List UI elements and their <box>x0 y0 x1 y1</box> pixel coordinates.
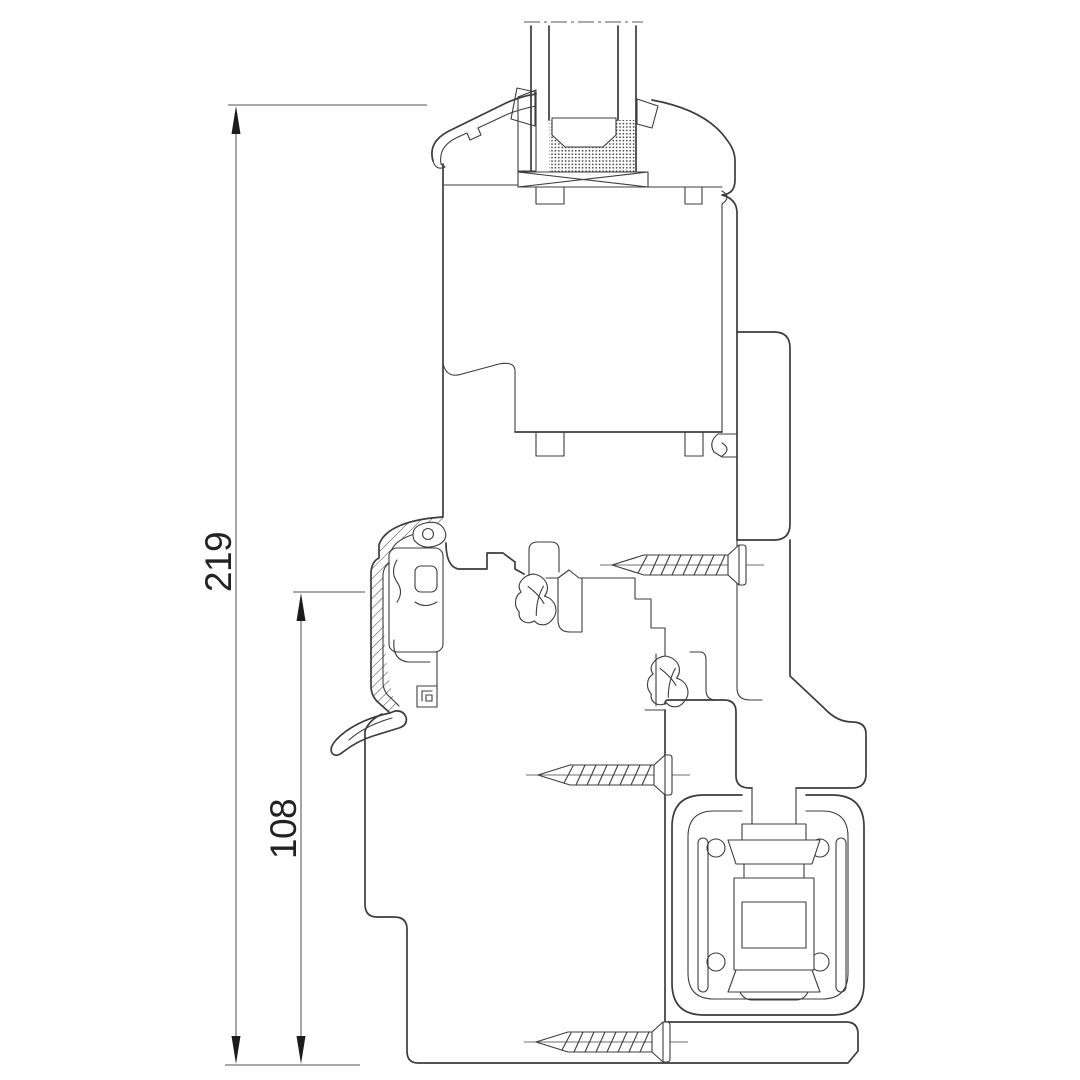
stem <box>752 788 796 824</box>
sash-bump-lower <box>722 443 727 456</box>
collar <box>742 824 806 840</box>
gasket-blob-core <box>423 529 434 540</box>
arrowhead-up <box>297 593 306 621</box>
glazing-unit <box>511 22 658 187</box>
dimension-108: 108 <box>263 592 365 1064</box>
sash-chamber-step <box>443 363 515 432</box>
screw-top <box>600 545 764 585</box>
cross-section-drawing: 219 108 <box>0 0 1080 1080</box>
dimension-label-219: 219 <box>198 532 239 592</box>
roller-carriage <box>728 788 820 1000</box>
spool-top-plate <box>728 840 820 864</box>
sash-bridge-left <box>536 187 564 204</box>
track-notch <box>707 953 725 971</box>
sash-flange <box>737 332 790 540</box>
sash-bridge-right <box>685 187 702 204</box>
glass-pane-outer <box>531 26 549 172</box>
sash-bump-upper <box>722 191 727 204</box>
frame-boot <box>665 540 866 788</box>
sash-downstand <box>446 543 524 574</box>
spool-neck <box>744 864 804 878</box>
bead-outer-curve <box>432 94 536 161</box>
screw-middle <box>526 755 690 795</box>
screw-bottom <box>524 1022 688 1062</box>
side-plate-left <box>698 838 708 992</box>
spacer-profile <box>552 118 616 147</box>
track-notch <box>707 839 725 857</box>
arrowhead-down <box>232 1036 241 1064</box>
spool-body <box>734 878 814 970</box>
gasket-upper <box>510 571 559 630</box>
arrowhead-up <box>232 106 241 134</box>
sash-foot-left <box>536 432 564 456</box>
aluminum-cladding <box>331 517 446 755</box>
bead-hatch-strip <box>518 90 536 171</box>
setting-block <box>518 172 648 187</box>
sealant-wedge-right <box>637 99 658 128</box>
arrowhead-down <box>297 1036 306 1064</box>
brand-mark <box>417 686 437 707</box>
bead-inner-curve <box>441 106 536 164</box>
sash-foot-right <box>685 432 703 456</box>
side-plate-right <box>836 838 846 992</box>
connector-block <box>389 548 443 686</box>
drip-nose <box>331 711 406 755</box>
dimension-label-108: 108 <box>263 799 304 859</box>
sash-top-right-slope <box>652 100 737 540</box>
gasket-lower <box>642 653 691 712</box>
glazing-bead <box>432 90 536 171</box>
technical-drawing-canvas: 219 108 <box>0 0 1080 1080</box>
frame-lug <box>546 570 665 655</box>
spool-bottom-flange <box>728 970 820 992</box>
